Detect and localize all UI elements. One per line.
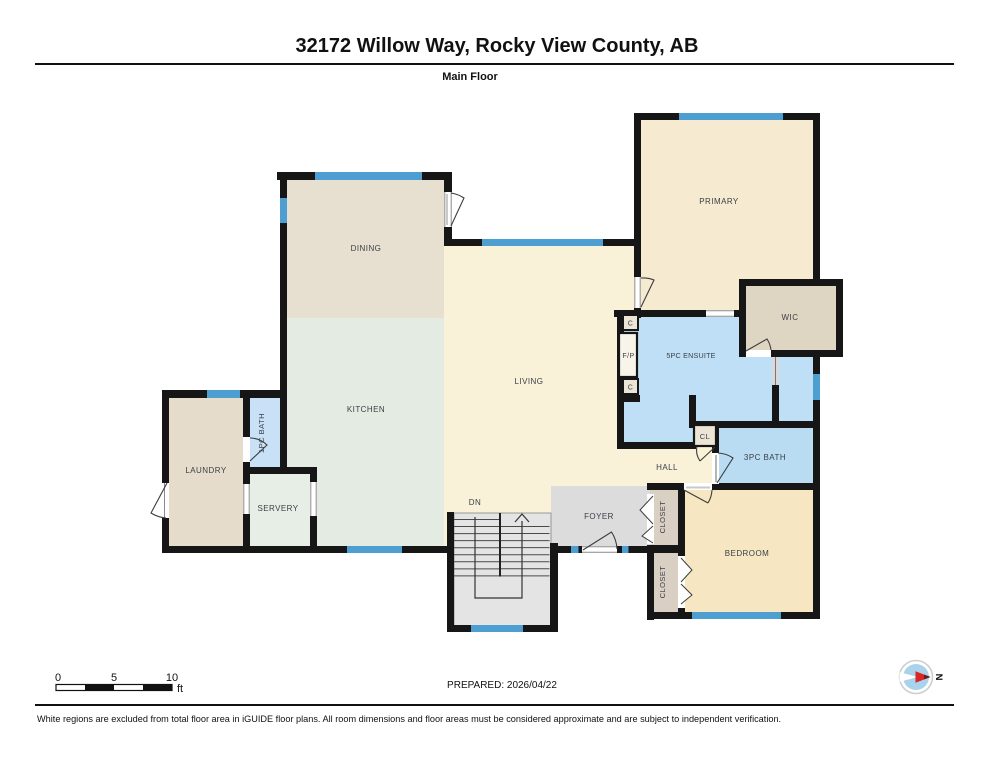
svg-text:32172 Willow Way, Rocky View C: 32172 Willow Way, Rocky View County, AB (296, 35, 699, 57)
svg-text:FOYER: FOYER (584, 512, 614, 521)
svg-text:DINING: DINING (351, 244, 382, 253)
svg-text:SERVERY: SERVERY (257, 504, 298, 513)
svg-text:BEDROOM: BEDROOM (725, 549, 770, 558)
svg-text:3PC BATH: 3PC BATH (744, 453, 786, 462)
svg-text:PRIMARY: PRIMARY (699, 197, 739, 206)
svg-text:WIC: WIC (782, 313, 799, 322)
svg-text:LAUNDRY: LAUNDRY (185, 466, 226, 475)
svg-text:KITCHEN: KITCHEN (347, 405, 385, 414)
svg-text:CLOSET: CLOSET (658, 501, 667, 534)
svg-text:CLOSET: CLOSET (658, 566, 667, 599)
svg-text:White regions are excluded fro: White regions are excluded from total fl… (37, 714, 781, 724)
svg-text:DN: DN (469, 498, 481, 507)
svg-text:Main Floor: Main Floor (442, 71, 498, 83)
svg-text:CL: CL (700, 432, 711, 441)
svg-text:N: N (933, 674, 944, 681)
svg-text:5: 5 (111, 672, 117, 684)
svg-text:PREPARED: 2026/04/22: PREPARED: 2026/04/22 (447, 680, 557, 691)
svg-text:0: 0 (55, 672, 61, 684)
svg-text:C: C (628, 385, 634, 392)
svg-text:F/P: F/P (622, 353, 634, 360)
svg-text:5PC ENSUITE: 5PC ENSUITE (666, 351, 715, 360)
svg-text:C: C (628, 321, 634, 328)
svg-text:ft: ft (177, 683, 183, 695)
svg-text:LIVING: LIVING (515, 377, 544, 386)
svg-text:HALL: HALL (656, 463, 678, 472)
